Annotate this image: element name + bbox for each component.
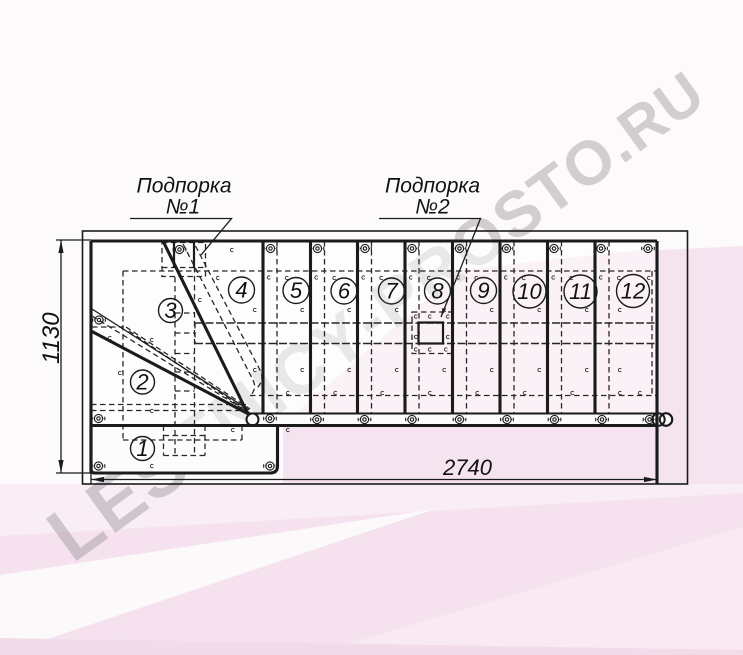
svg-text:2: 2 xyxy=(135,370,148,395)
svg-text:7: 7 xyxy=(385,279,398,304)
svg-text:9: 9 xyxy=(477,278,489,303)
svg-text:Подпорка: Подпорка xyxy=(136,175,231,198)
svg-text:11: 11 xyxy=(569,279,592,304)
svg-text:4: 4 xyxy=(235,278,247,303)
svg-text:10: 10 xyxy=(517,279,542,304)
svg-text:№1: №1 xyxy=(166,196,200,219)
svg-text:8: 8 xyxy=(431,279,444,304)
svg-text:1: 1 xyxy=(136,436,148,461)
svg-text:№2: №2 xyxy=(415,196,450,219)
svg-text:6: 6 xyxy=(338,279,351,304)
svg-text:3: 3 xyxy=(164,298,177,323)
svg-text:Подпорка: Подпорка xyxy=(385,175,480,198)
svg-text:5: 5 xyxy=(290,278,303,303)
svg-text:12: 12 xyxy=(621,279,645,304)
svg-text:2740: 2740 xyxy=(442,455,493,480)
svg-text:1130: 1130 xyxy=(38,312,65,364)
